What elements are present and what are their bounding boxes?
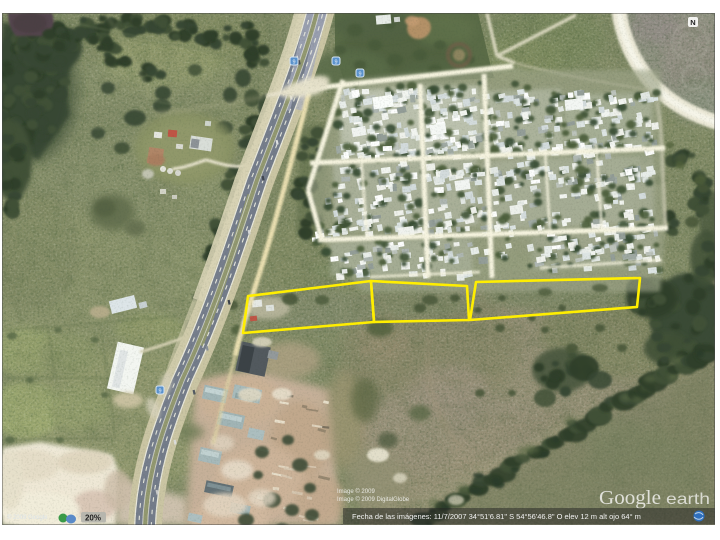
svg-text:Google: Google xyxy=(599,487,661,509)
svg-text:9: 9 xyxy=(292,59,295,65)
svg-text:Fecha de las imágenes: 11/7/20: Fecha de las imágenes: 11/7/2007 34°51'6… xyxy=(352,512,641,521)
svg-text:9: 9 xyxy=(358,71,361,77)
svg-text:N: N xyxy=(690,18,695,27)
svg-text:Image © 2009 DigitalGlobe: Image © 2009 DigitalGlobe xyxy=(337,496,410,503)
svg-text:© 2009 Google: © 2009 Google xyxy=(7,514,48,521)
svg-text:9: 9 xyxy=(158,388,161,394)
svg-text:20%: 20% xyxy=(85,514,101,523)
svg-text:earth: earth xyxy=(666,491,710,508)
svg-text:Image © 2009: Image © 2009 xyxy=(337,488,375,495)
svg-text:9: 9 xyxy=(334,59,337,65)
